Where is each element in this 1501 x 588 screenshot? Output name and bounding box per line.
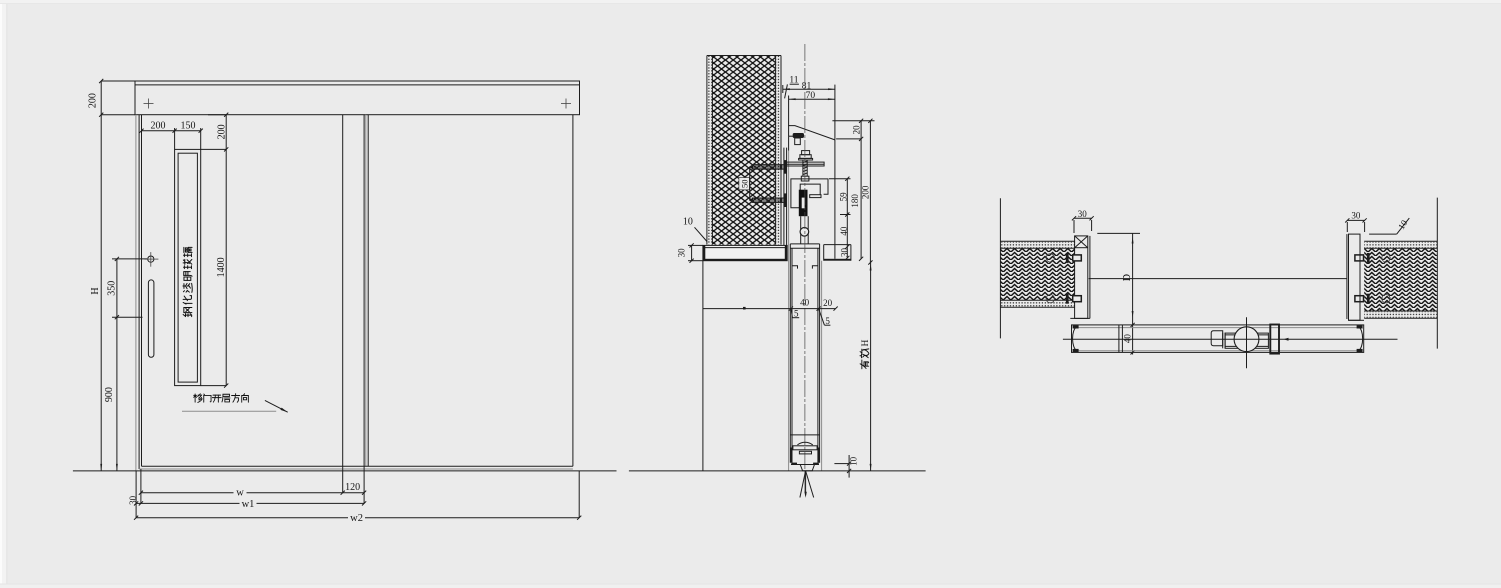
svg-text:50: 50 (740, 179, 750, 188)
svg-text:30: 30 (839, 248, 849, 258)
svg-text:1400: 1400 (216, 257, 227, 277)
svg-text:70: 70 (806, 91, 816, 101)
svg-text:H: H (861, 339, 871, 346)
svg-text:200: 200 (861, 185, 871, 199)
svg-text:200: 200 (151, 120, 166, 131)
svg-text:30: 30 (1078, 209, 1088, 219)
svg-text:350: 350 (107, 281, 118, 296)
svg-text:30: 30 (128, 495, 138, 505)
svg-text:150: 150 (181, 120, 196, 131)
svg-text:D: D (1122, 274, 1133, 281)
svg-text:40: 40 (839, 226, 849, 236)
svg-text:59: 59 (839, 192, 849, 202)
svg-text:30: 30 (1351, 210, 1361, 220)
svg-text:w2: w2 (350, 513, 363, 524)
svg-text:900: 900 (104, 387, 115, 402)
svg-text:w: w (236, 488, 244, 499)
svg-text:5: 5 (825, 316, 830, 326)
svg-text:30: 30 (676, 248, 686, 258)
svg-text:200: 200 (87, 93, 98, 108)
svg-text:w1: w1 (242, 499, 255, 510)
svg-text:40: 40 (800, 298, 810, 308)
svg-text:180: 180 (850, 194, 860, 208)
svg-text:5: 5 (794, 309, 799, 319)
svg-text:200: 200 (216, 124, 227, 139)
svg-text:20: 20 (851, 125, 861, 135)
svg-text:81: 81 (802, 81, 812, 91)
svg-text:40: 40 (1122, 334, 1132, 344)
svg-text:10: 10 (683, 217, 693, 228)
svg-text:20: 20 (823, 298, 833, 308)
svg-text:10: 10 (848, 456, 858, 466)
svg-text:120: 120 (345, 482, 360, 493)
svg-text:H: H (90, 287, 101, 294)
